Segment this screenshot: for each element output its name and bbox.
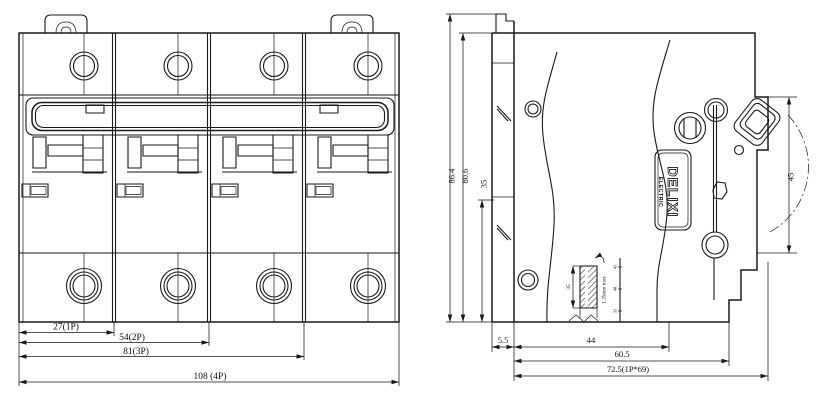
din-rail-detail: 45 40 35 35 1.35mm max [566,256,622,322]
side-dimension-right: 45 [757,97,797,253]
rail-note-leader [595,256,604,263]
padlock-slot-right [320,105,338,113]
case-cutout-hex [713,182,727,199]
rivets [518,99,728,291]
padlock-slot-left [86,105,104,113]
rail-tick-1: 45 [613,264,618,269]
brand-sub: ELECTRIC [657,177,663,208]
break-symbol [569,315,598,322]
top-terminal-screws [70,33,382,95]
rail-tick-3: 35 [613,308,618,313]
dim-label-86-4: 86.4 [447,168,457,184]
case-seam-left [542,52,557,322]
rail-note: 1.35mm max [602,276,608,304]
back-panel [492,14,514,322]
handle-pivot-screw [735,146,744,155]
bottom-terminal-screws [67,253,386,322]
rail-cross-section [580,266,597,308]
breaker-outline-drawing: 27(1P) 54(2P) 81(3P) 108 (4P) [0,0,834,410]
dim-label-3p: 81(3P) [123,346,149,357]
dim-label-1p: 27(1P) [53,322,79,333]
technical-drawing-canvas: 27(1P) 54(2P) 81(3P) 108 (4P) [0,0,834,410]
rail-tick-2: 40 [613,286,618,291]
side-dimensions-left: 86.4 80.6 35 [446,14,496,322]
rail-clip-tooth-upper [497,106,511,121]
dim-label-5-5: 5.5 [498,335,509,345]
dim-label-45: 45 [786,173,796,182]
dim-label-60-5: 60.5 [615,349,630,359]
dim-label-35: 35 [479,180,489,189]
side-view: DELIXI ELECTRIC 45 40 35 35 1.35mm max [446,14,808,381]
toggle-handle [731,96,808,232]
dim-label-72-5: 72.5(1P*69) [607,364,649,374]
dim-label-80-6: 80.6 [460,169,470,184]
front-dimensions: 27(1P) 54(2P) 81(3P) 108 (4P) [19,322,399,387]
mounting-ear-right [331,15,373,33]
side-body-outline [492,33,768,322]
dim-label-44: 44 [587,335,596,345]
front-view: 27(1P) 54(2P) 81(3P) 108 (4P) [19,15,399,386]
rail-clip-tooth-lower [497,225,511,240]
dim-label-2p: 54(2P) [119,332,145,343]
mounting-ear-left [45,15,87,33]
brand-name: DELIXI [665,166,681,217]
dim-label-4p: 108 (4P) [194,371,227,382]
rail-width-label: 35 [566,284,572,290]
